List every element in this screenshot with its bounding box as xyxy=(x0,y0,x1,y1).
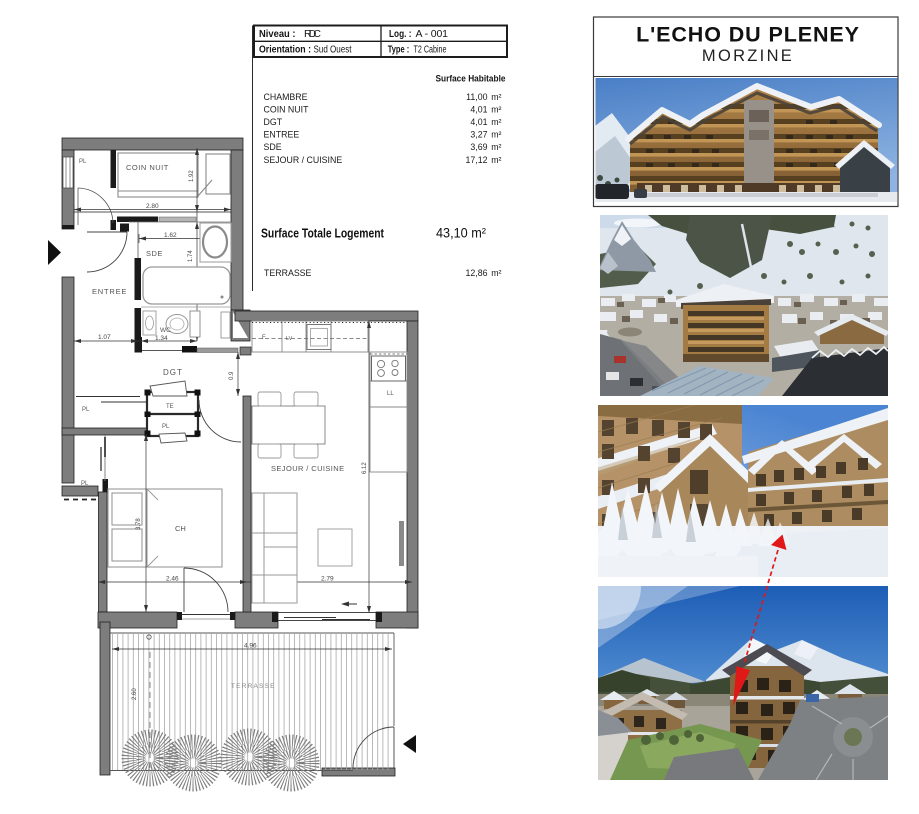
svg-text:PL: PL xyxy=(162,424,170,430)
svg-text:ENTREE: ENTREE xyxy=(264,130,300,140)
svg-text:WC: WC xyxy=(160,327,171,334)
svg-text:0.9: 0.9 xyxy=(229,371,235,380)
svg-text:F: F xyxy=(262,335,266,341)
svg-text:PL: PL xyxy=(81,481,89,487)
svg-text:m²: m² xyxy=(491,142,501,152)
svg-text:2.60: 2.60 xyxy=(132,688,138,700)
svg-text:3,27: 3,27 xyxy=(470,130,487,140)
svg-text:17,12: 17,12 xyxy=(465,155,487,165)
svg-text:LL: LL xyxy=(387,391,394,397)
svg-text:T2 Cabine: T2 Cabine xyxy=(414,44,447,56)
svg-text:SDE: SDE xyxy=(146,249,163,258)
svg-text:m²: m² xyxy=(491,155,501,165)
svg-text:4,01: 4,01 xyxy=(470,104,487,114)
svg-text:MORZINE: MORZINE xyxy=(702,47,794,65)
svg-text:6.12: 6.12 xyxy=(362,462,368,474)
svg-text:TERRASSE: TERRASSE xyxy=(231,683,276,690)
svg-text:L'ECHO DU PLENEY: L'ECHO DU PLENEY xyxy=(636,23,860,47)
svg-text:SEJOUR / CUISINE: SEJOUR / CUISINE xyxy=(271,464,345,473)
svg-text:2.80: 2.80 xyxy=(146,203,159,210)
svg-text:SDE: SDE xyxy=(264,142,282,152)
svg-text:DGT: DGT xyxy=(264,117,283,127)
svg-text:4,01: 4,01 xyxy=(470,117,487,127)
svg-text:TE: TE xyxy=(166,404,174,410)
svg-text:1.74: 1.74 xyxy=(188,250,194,262)
svg-text:COIN NUIT: COIN NUIT xyxy=(126,163,169,172)
svg-text:4.96: 4.96 xyxy=(244,643,257,650)
svg-text:m²: m² xyxy=(491,104,501,114)
svg-text:Niveau :: Niveau : xyxy=(259,28,296,40)
svg-text:ENTREE: ENTREE xyxy=(92,287,127,296)
svg-text:Surface Habitable: Surface Habitable xyxy=(436,74,506,84)
svg-text:Log. :: Log. : xyxy=(389,28,412,40)
svg-text:COIN NUIT: COIN NUIT xyxy=(264,104,310,114)
svg-text:CH: CH xyxy=(175,524,186,533)
svg-text:Orientation :: Orientation : xyxy=(259,44,311,56)
svg-text:SEJOUR / CUISINE: SEJOUR / CUISINE xyxy=(264,155,343,165)
svg-text:12,86: 12,86 xyxy=(465,268,487,278)
svg-text:m²: m² xyxy=(491,117,501,127)
svg-text:TERRASSE: TERRASSE xyxy=(264,268,312,278)
svg-text:m²: m² xyxy=(491,268,501,278)
svg-text:A - 001: A - 001 xyxy=(416,28,449,40)
svg-text:DGT: DGT xyxy=(163,368,183,377)
svg-text:LV: LV xyxy=(286,336,293,342)
svg-text:43,10 m²: 43,10 m² xyxy=(436,225,486,241)
svg-text:1.62: 1.62 xyxy=(164,232,177,239)
svg-text:CHAMBRE: CHAMBRE xyxy=(264,92,308,102)
svg-text:3,69: 3,69 xyxy=(470,142,487,152)
svg-text:PL: PL xyxy=(82,407,90,413)
svg-text:11,00: 11,00 xyxy=(466,92,487,102)
svg-text:Surface Totale Logement: Surface Totale Logement xyxy=(261,227,385,241)
svg-text:Type :: Type : xyxy=(388,44,410,56)
svg-text:PL: PL xyxy=(79,159,87,165)
svg-text:3.78: 3.78 xyxy=(136,518,142,530)
svg-text:m²: m² xyxy=(491,130,501,140)
svg-text:1.34: 1.34 xyxy=(155,335,168,342)
svg-text:2.79: 2.79 xyxy=(321,576,334,583)
svg-text:1.92: 1.92 xyxy=(189,170,195,182)
svg-text:1.07: 1.07 xyxy=(98,334,111,341)
svg-text:RDC: RDC xyxy=(304,28,321,40)
svg-text:m²: m² xyxy=(491,92,501,102)
svg-text:2.46: 2.46 xyxy=(166,576,179,583)
svg-text:Sud Ouest: Sud Ouest xyxy=(314,44,352,56)
